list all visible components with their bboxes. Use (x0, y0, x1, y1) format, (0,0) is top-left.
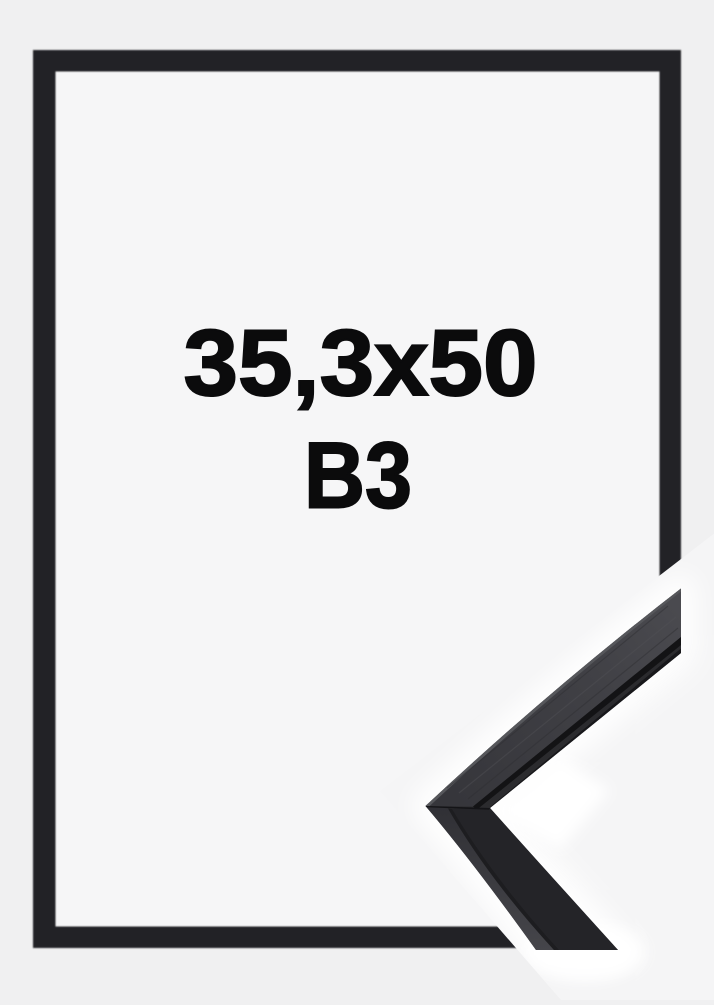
svg-text:35,3x50: 35,3x50 (184, 310, 538, 415)
svg-text:B3: B3 (304, 423, 412, 528)
